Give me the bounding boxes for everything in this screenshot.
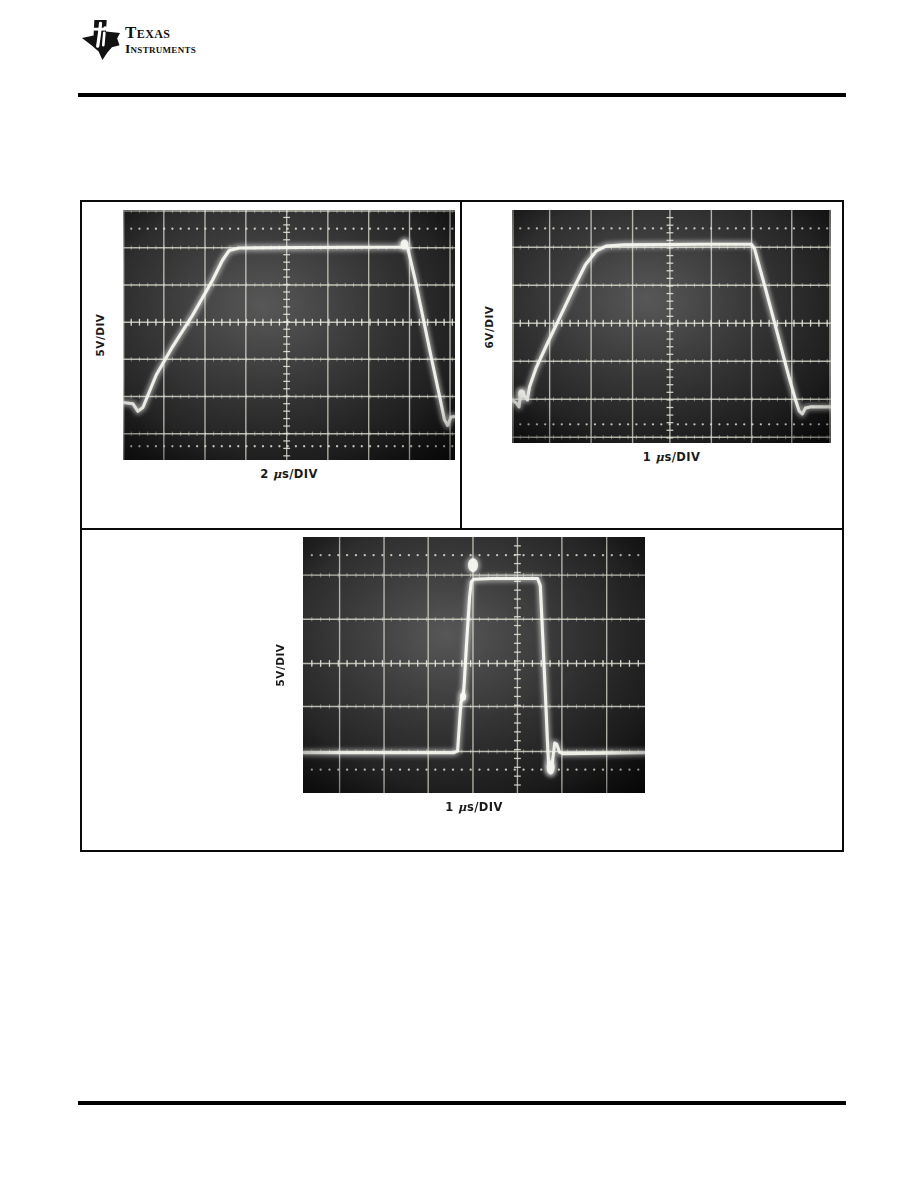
volts-per-div-label: 5V/DIV <box>274 643 286 686</box>
scope-photo-top-left: 5V/DIV2 μs/DIV <box>123 210 455 460</box>
scope-photo-bottom-center: 5V/DIV1 μs/DIV <box>303 537 645 793</box>
top-rule <box>78 93 846 97</box>
scope-screen-image <box>123 210 455 460</box>
time-per-div-label: 1 μs/DIV <box>303 800 645 814</box>
volts-per-div-label: 5V/DIV <box>94 313 106 356</box>
figure-cell-divider-vertical <box>460 202 462 528</box>
ti-wordmark: Texas Instruments <box>125 24 196 56</box>
volts-per-div-label-wrap: 5V/DIV <box>267 537 293 793</box>
ti-logo: Texas Instruments <box>82 20 196 60</box>
scope-screen-image <box>303 537 645 793</box>
time-per-div-label: 1 μs/DIV <box>512 450 831 464</box>
bottom-rule <box>78 1101 846 1105</box>
logo-line1: Texas <box>125 24 196 41</box>
time-per-div-label: 2 μs/DIV <box>123 467 455 481</box>
scope-photo-top-right: 6V/DIV1 μs/DIV <box>512 210 831 443</box>
logo-line2: Instruments <box>125 42 196 56</box>
ti-texas-map-icon <box>82 20 120 60</box>
figure-cell-divider-horizontal <box>82 528 842 530</box>
volts-per-div-label: 6V/DIV <box>483 305 495 348</box>
volts-per-div-label-wrap: 5V/DIV <box>87 210 113 460</box>
datasheet-page: Texas Instruments 5V/DIV2 μs/DIV6V/DIV1 … <box>0 0 918 1188</box>
scope-screen-image <box>512 210 831 443</box>
volts-per-div-label-wrap: 6V/DIV <box>476 210 502 443</box>
